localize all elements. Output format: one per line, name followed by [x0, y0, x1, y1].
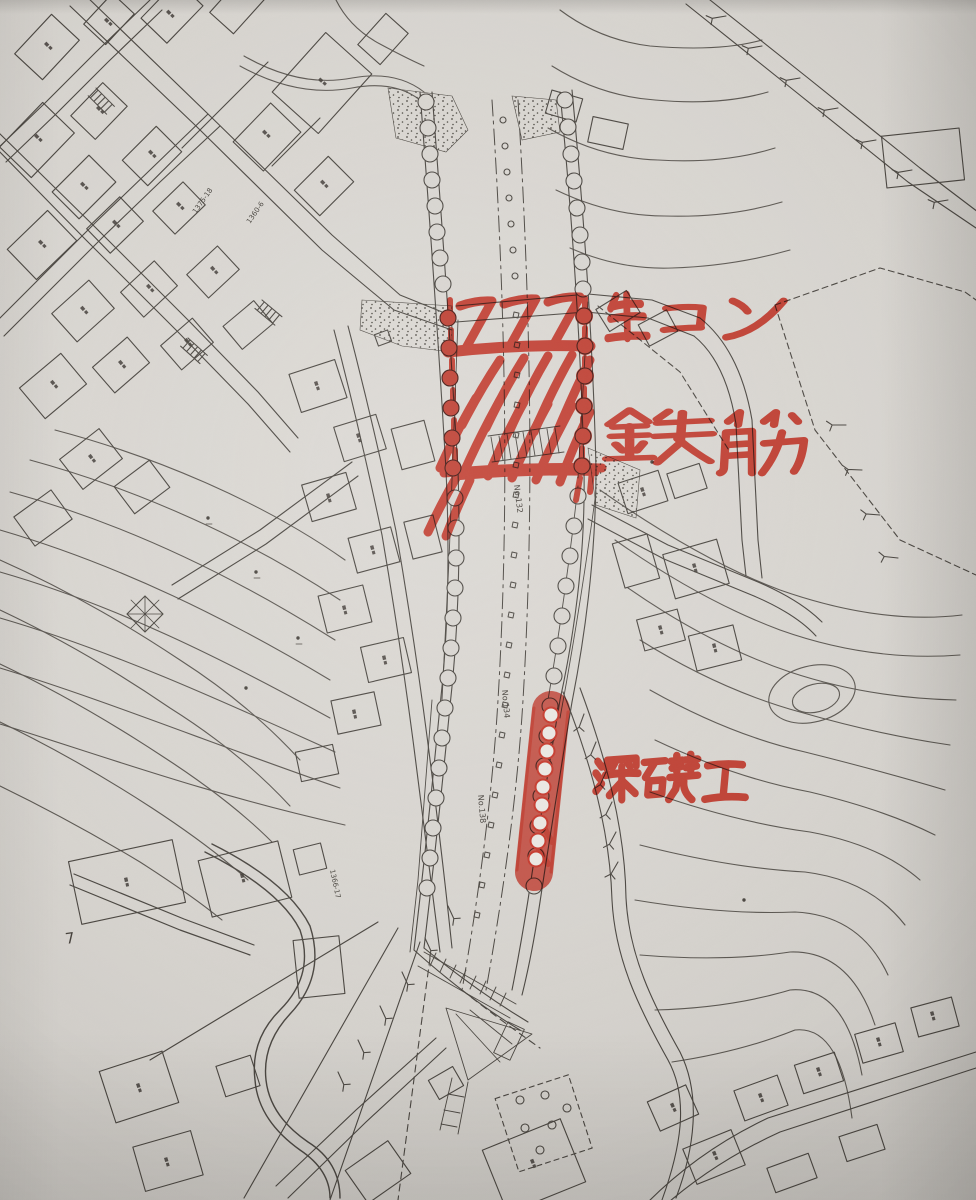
photo-grain: [0, 0, 976, 1200]
map-drawing: No.132 No.134 No.138 1375-18 1360-6 1366…: [0, 0, 976, 1200]
site-plan-photo: No.132 No.134 No.138 1375-18 1360-6 1366…: [0, 0, 976, 1200]
